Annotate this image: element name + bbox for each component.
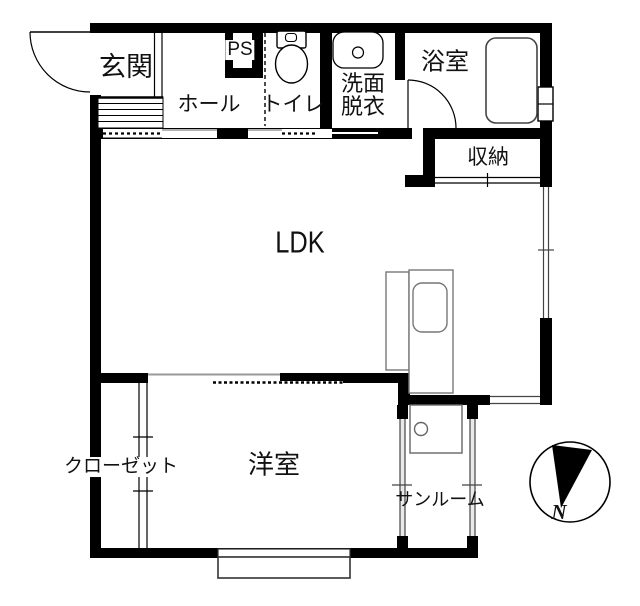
wall-washroom-bath: [395, 33, 405, 80]
wall-ldk-west-a: [100, 373, 148, 383]
wall-post-kitchen: [398, 373, 410, 405]
bathtub-icon: [486, 38, 537, 123]
room-label-sunroom: サンルーム: [395, 491, 484, 510]
room-label-hall: ホール: [178, 94, 241, 116]
washing-machine-icon: [410, 405, 462, 453]
ldk-east-window: [538, 187, 554, 318]
compass-north-indicator: [530, 442, 610, 522]
bathroom-door: [408, 80, 456, 128]
sunroom-post-br: [467, 536, 478, 548]
compass-north-label: N: [551, 501, 566, 523]
room-label-washroom: 洗面脱衣: [341, 72, 385, 118]
washbasin-icon: [333, 32, 383, 68]
genkan-partition: [155, 33, 163, 97]
floor-plan: 玄関 PS ホール トイレ 洗面脱衣 浴室 収納 LDK クローゼット 洋室 サ…: [0, 0, 640, 606]
room-label-western-room: 洋室: [248, 451, 300, 478]
room-label-genkan: 玄関: [99, 53, 153, 81]
washroom-line2: 脱衣: [341, 94, 385, 119]
ps-wall-bottom: [225, 68, 263, 78]
entrance-steps: [97, 97, 163, 128]
room-label-toilet: トイレ: [262, 94, 325, 116]
storage-sliding-door: [435, 173, 540, 187]
wall-kitchen-south: [410, 395, 490, 405]
wall-top: [90, 23, 552, 33]
sunroom-post-tl: [397, 405, 408, 419]
room-label-ps: PS: [225, 40, 254, 60]
room-label-closet: クローゼット: [62, 457, 180, 477]
room-label-bathroom: 浴室: [421, 49, 469, 74]
kitchen-south-window: [490, 395, 540, 405]
room-label-storage: 収納: [467, 147, 509, 169]
floor-plan-drawing: [0, 0, 640, 606]
sunroom-post-bl: [397, 536, 408, 548]
toilet-icon: [276, 31, 308, 83]
west-room-bay-window: [218, 549, 350, 578]
wall-right-lower: [540, 318, 552, 405]
sunroom-post-tr: [467, 405, 478, 419]
room-label-ldk: LDK: [275, 227, 324, 260]
wall-ldk-west-b: [280, 373, 343, 381]
storage-wall-stub: [405, 175, 435, 187]
bathroom-door-arc: [408, 80, 456, 128]
entrance-door: [30, 32, 90, 92]
kitchen-sink-icon: [413, 283, 447, 332]
washroom-line1: 洗面: [341, 71, 385, 96]
wall-left: [90, 95, 101, 558]
entrance-door-arc: [30, 32, 90, 92]
